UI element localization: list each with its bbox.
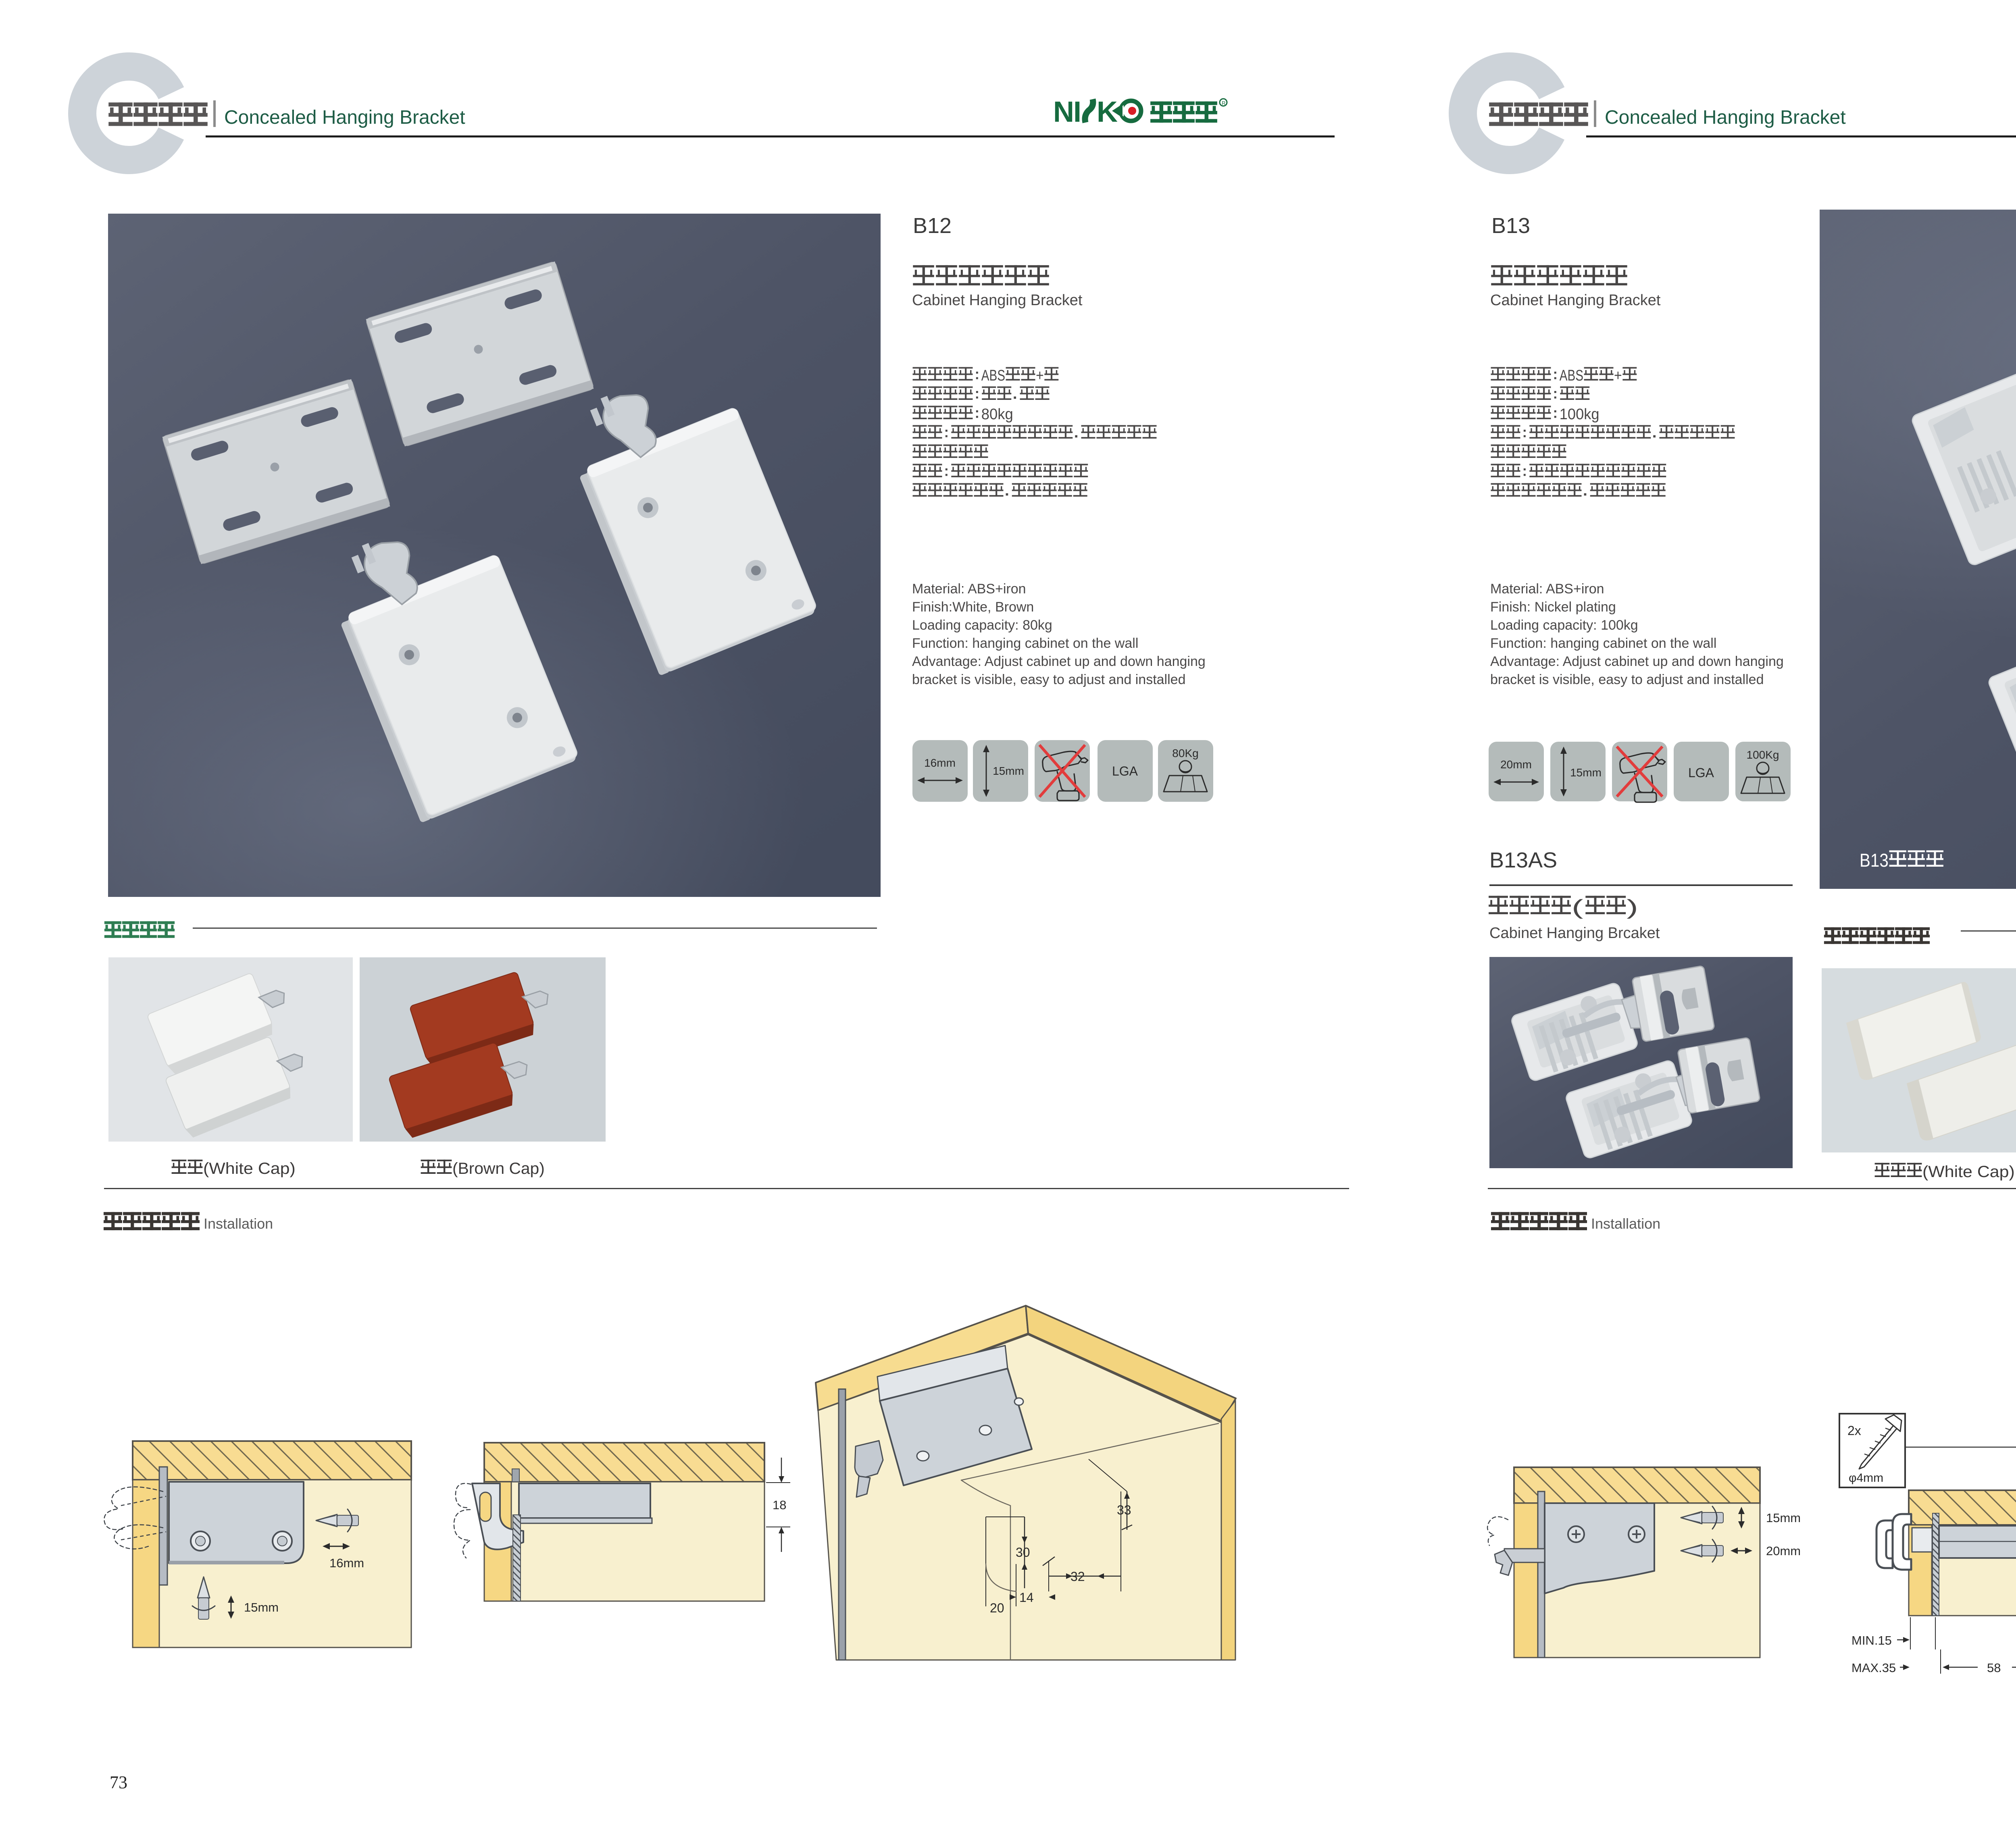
svg-text:30: 30 — [1016, 1545, 1030, 1560]
svg-text:18: 18 — [773, 1498, 786, 1512]
svg-text:100Kg: 100Kg — [1747, 749, 1779, 761]
svg-text:Advantage: Adjust cabinet up a: Advantage: Adjust cabinet up and down ha… — [1490, 654, 1784, 669]
svg-text:Material: ABS+iron: Material: ABS+iron — [1490, 581, 1604, 597]
svg-text:R: R — [1222, 100, 1225, 106]
svg-text:33: 33 — [1117, 1503, 1131, 1517]
svg-text:Concealed Hanging Bracket: Concealed Hanging Bracket — [224, 107, 465, 128]
svg-text:Installation: Installation — [204, 1215, 273, 1232]
svg-text:15mm: 15mm — [993, 765, 1024, 777]
svg-text:MAX.35: MAX.35 — [1851, 1661, 1896, 1675]
svg-text:LGA: LGA — [1688, 765, 1714, 780]
svg-text:Finish: Nickel plating: Finish: Nickel plating — [1490, 599, 1616, 615]
svg-text:(Brown Cap): (Brown Cap) — [452, 1160, 545, 1177]
svg-text:B12: B12 — [913, 214, 952, 238]
svg-text:16mm: 16mm — [329, 1556, 364, 1570]
svg-text:Installation: Installation — [1591, 1215, 1660, 1232]
svg-text:(White Cap): (White Cap) — [1922, 1163, 2015, 1181]
svg-text:Advantage: Adjust cabinet up a: Advantage: Adjust cabinet up and down ha… — [912, 654, 1206, 669]
svg-text:32: 32 — [1070, 1569, 1085, 1584]
svg-text:(: ( — [1572, 896, 1584, 919]
svg-text:ABS: ABS — [1560, 367, 1583, 384]
svg-text:Function: hanging cabinet on t: Function: hanging cabinet on the wall — [912, 636, 1138, 651]
svg-text:Cabinet Hanging Bracket: Cabinet Hanging Bracket — [1490, 292, 1661, 309]
svg-text:+: + — [1036, 367, 1044, 384]
svg-text:bracket is visible, easy to ad: bracket is visible, easy to adjust and i… — [912, 672, 1185, 687]
svg-text:Finish:White, Brown: Finish:White, Brown — [912, 599, 1034, 615]
svg-text:B13AS: B13AS — [1489, 848, 1557, 872]
svg-text:ABS: ABS — [981, 367, 1005, 384]
svg-text:73: 73 — [110, 1772, 127, 1792]
svg-text:20mm: 20mm — [1766, 1544, 1801, 1558]
svg-text:+: + — [1614, 367, 1622, 384]
svg-text:LGA: LGA — [1112, 764, 1138, 778]
svg-text:15mm: 15mm — [1766, 1511, 1801, 1525]
svg-text:B13: B13 — [1860, 850, 1889, 871]
svg-text:Loading capacity: 80kg: Loading capacity: 80kg — [912, 618, 1052, 633]
svg-text:B13: B13 — [1491, 214, 1530, 238]
svg-text:2x: 2x — [1847, 1423, 1861, 1438]
svg-text:Concealed Hanging Bracket: Concealed Hanging Bracket — [1605, 107, 1846, 128]
svg-text:(White Cap): (White Cap) — [203, 1160, 296, 1177]
svg-text:NI: NI — [1053, 96, 1081, 128]
svg-text:80Kg: 80Kg — [1172, 747, 1198, 759]
svg-text:20: 20 — [990, 1601, 1004, 1615]
svg-text:bracket is visible, easy to ad: bracket is visible, easy to adjust and i… — [1490, 672, 1764, 687]
svg-text:Material: ABS+iron: Material: ABS+iron — [912, 581, 1026, 597]
svg-text:58: 58 — [1987, 1661, 2001, 1675]
svg-text:Cabinet Hanging Brcaket: Cabinet Hanging Brcaket — [1489, 925, 1660, 942]
svg-text:20mm: 20mm — [1500, 758, 1532, 771]
svg-text:14: 14 — [1019, 1590, 1034, 1605]
svg-text:Loading capacity: 100kg: Loading capacity: 100kg — [1490, 618, 1638, 633]
svg-text:): ) — [1627, 896, 1638, 919]
svg-text:Function: hanging cabinet on t: Function: hanging cabinet on the wall — [1490, 636, 1716, 651]
svg-text:MIN.15: MIN.15 — [1851, 1633, 1892, 1647]
svg-text:16mm: 16mm — [924, 757, 956, 769]
svg-text:80kg: 80kg — [981, 406, 1013, 423]
svg-text:15mm: 15mm — [244, 1600, 279, 1614]
svg-text:15mm: 15mm — [1570, 766, 1602, 779]
svg-text:100kg: 100kg — [1560, 406, 1599, 423]
svg-text:Cabinet Hanging Bracket: Cabinet Hanging Bracket — [912, 292, 1083, 309]
svg-text:φ4mm: φ4mm — [1849, 1471, 1883, 1485]
